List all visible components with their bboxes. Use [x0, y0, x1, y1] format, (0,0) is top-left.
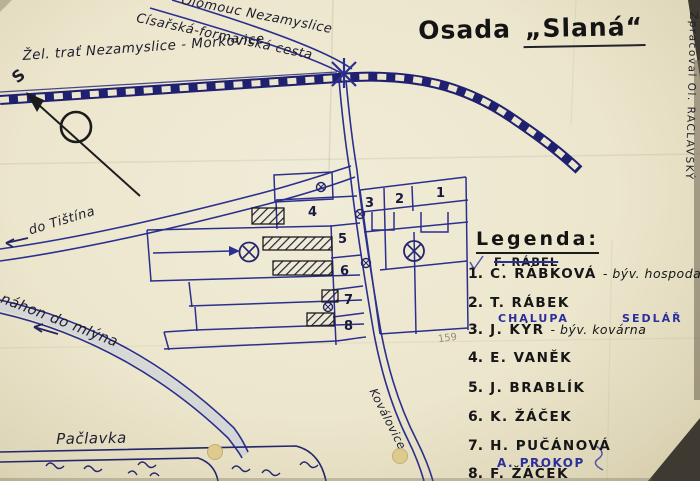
- well-small-icon: [324, 303, 333, 312]
- legend-number: 1.: [468, 266, 483, 282]
- legend-number: 2.: [468, 295, 483, 311]
- legend-number: 3.: [468, 322, 483, 338]
- page-title: Osada„Slaná“: [418, 12, 645, 45]
- plot-number-6: 6: [340, 264, 349, 279]
- plot-number-5: 5: [338, 232, 347, 247]
- legend-name: J. KÝR: [490, 322, 544, 338]
- railway-track: [0, 58, 579, 170]
- legend-note: - býv. hospoda: [603, 266, 700, 281]
- plot-number-7: 7: [344, 293, 353, 308]
- north-arrow-icon: [26, 92, 140, 196]
- legend-number: 4.: [468, 350, 483, 366]
- stream-paclavka: [0, 446, 326, 481]
- legend-note: - býv. kovárna: [551, 322, 647, 337]
- legend-entry-6: 6.K. ŽÁČEK: [468, 406, 572, 425]
- plot-number-4: 4: [308, 205, 317, 220]
- legend-name: F. ŽÁČEK: [490, 466, 569, 481]
- legend-number: 8.: [468, 466, 483, 481]
- legend-entry-3: 3.J. KÝR- býv. kovárna: [468, 319, 646, 338]
- title-prefix: Osada: [418, 14, 511, 45]
- title-name: „Slaná“: [523, 12, 646, 48]
- plot-number-1: 1: [436, 186, 445, 201]
- legend-number: 6.: [468, 409, 483, 425]
- legend-entry-5: 5.J. BRABLÍK: [468, 377, 585, 396]
- legend-name: E. VANĚK: [490, 350, 572, 366]
- plot-block-right: [360, 177, 468, 334]
- water-wave-icons: [46, 462, 318, 476]
- legend-number: 7.: [468, 438, 483, 454]
- legend-entry-1: 1.C. RÁBKOVÁ- býv. hospoda: [468, 263, 700, 282]
- legend-number: 5.: [468, 380, 483, 396]
- plot-number-8: 8: [344, 319, 353, 334]
- legend-entry-8: 8.F. ŽÁČEK: [468, 463, 569, 481]
- plot-number-2: 2: [395, 192, 404, 207]
- legend-entry-4: 4.E. VANĚK: [468, 347, 572, 366]
- scanned-map-page: Osada„Slaná“ Zpracoval Ol. RACLAVSKÝ Žel…: [0, 0, 700, 481]
- legend-name: K. ŽÁČEK: [490, 409, 572, 425]
- legend-name: J. BRABLÍK: [490, 380, 585, 396]
- well-large-icon: [240, 243, 259, 262]
- legend-name: C. RÁBKOVÁ: [490, 266, 597, 282]
- stream-label: Pačlavka: [56, 429, 127, 448]
- plot-number-3: 3: [365, 196, 374, 211]
